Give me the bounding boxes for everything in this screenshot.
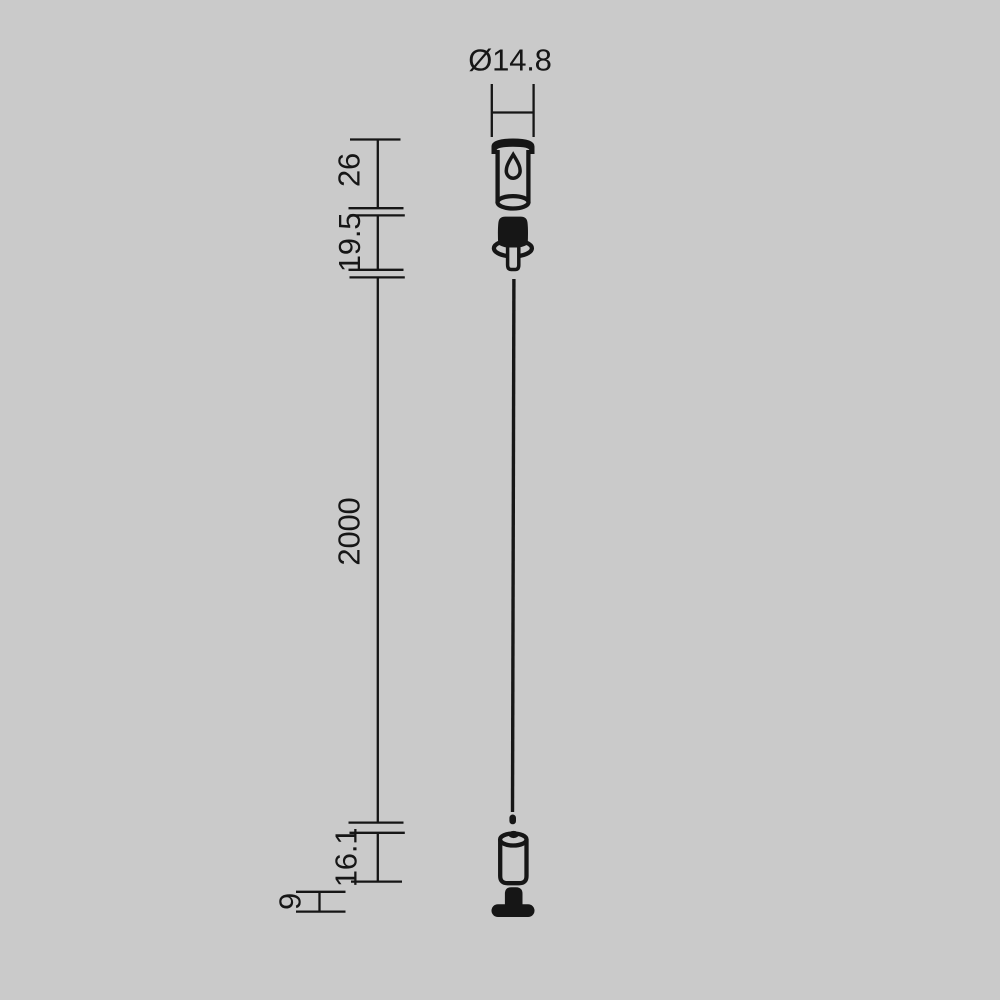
diameter-label: Ø14.8: [468, 43, 551, 78]
end-fitting: [500, 831, 526, 883]
dim-end-fitting-height: 16.1: [329, 828, 405, 888]
canopy-bottom-rim: [498, 196, 529, 208]
cable-tip: [509, 815, 516, 825]
gripper-body: [498, 217, 528, 249]
dimension-chain: 26 19.5 2000 16.1 9: [273, 140, 405, 912]
dim-cable-length: 2000: [332, 277, 405, 822]
diameter-dimension: Ø14.8: [468, 43, 551, 138]
end-fitting-cable-hole-icon: [508, 831, 518, 838]
dim-gripper-height: 19.5: [332, 213, 405, 273]
dim-canopy-height: 26: [332, 140, 404, 209]
canopy-height-label: 26: [332, 153, 367, 187]
cord-gripper: [494, 217, 532, 270]
gripper-stem: [508, 248, 519, 270]
cable-length-label: 2000: [332, 497, 367, 565]
end-fitting-height-label: 16.1: [329, 828, 364, 888]
diameter-extension-lines: [492, 84, 534, 137]
mounting-screw: [492, 887, 535, 917]
suspension-cable: [509, 279, 516, 824]
technical-drawing-page: Ø14.8 26 19.5 2000 16.1 9: [0, 0, 1000, 1000]
teardrop-cable-hole-icon: [506, 155, 520, 179]
screw-base-flange: [492, 904, 535, 917]
suspension-cable-drawing: Ø14.8 26 19.5 2000 16.1 9: [0, 0, 1000, 1000]
ceiling-fitting: [492, 139, 535, 209]
base-height-label: 9: [273, 893, 308, 910]
cable-line: [513, 279, 514, 812]
dim-base-height: 9: [273, 892, 346, 912]
gripper-height-label: 19.5: [332, 213, 367, 273]
